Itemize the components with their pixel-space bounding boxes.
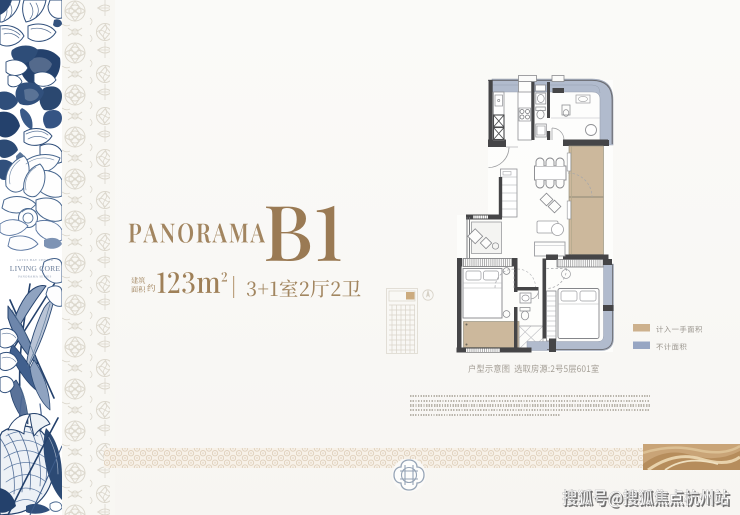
svg-text:LOTUS BAY CENTER: LOTUS BAY CENTER — [17, 258, 54, 262]
svg-text:LIVING CORE: LIVING CORE — [10, 264, 60, 273]
svg-text:PANORAMA SERIES: PANORAMA SERIES — [18, 275, 51, 279]
